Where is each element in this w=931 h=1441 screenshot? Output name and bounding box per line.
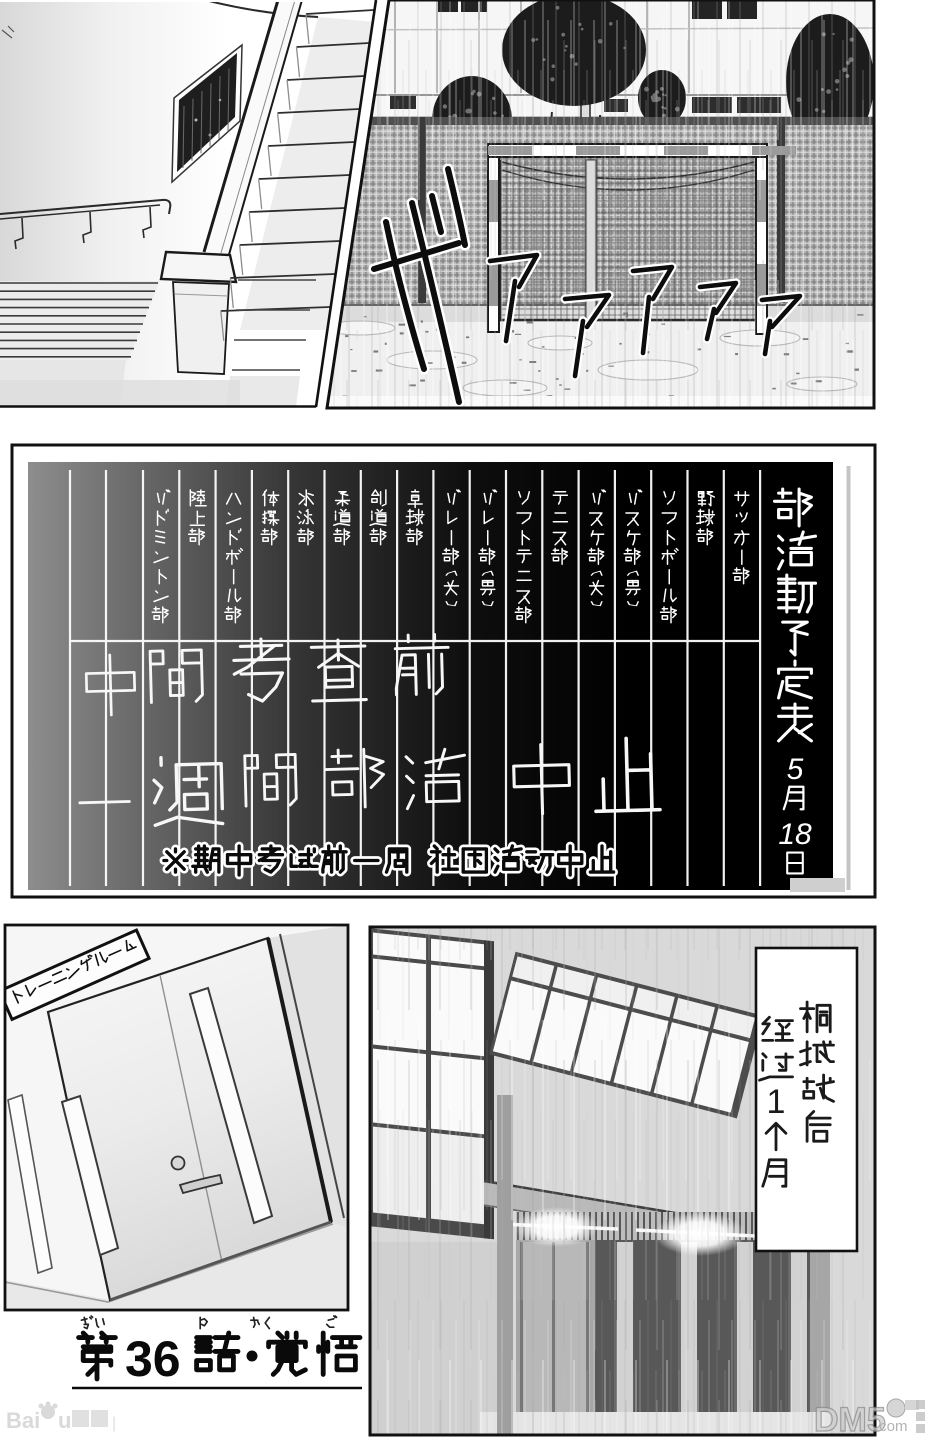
svg-text:.com: .com xyxy=(875,1418,908,1435)
svg-text:36: 36 xyxy=(125,1331,181,1387)
svg-text:1: 1 xyxy=(767,1083,786,1121)
svg-text:u: u xyxy=(58,1408,71,1433)
svg-text:18: 18 xyxy=(778,818,812,851)
svg-text:5: 5 xyxy=(787,753,804,786)
svg-text:Bai: Bai xyxy=(6,1408,40,1433)
svg-text:|: | xyxy=(112,1415,116,1432)
